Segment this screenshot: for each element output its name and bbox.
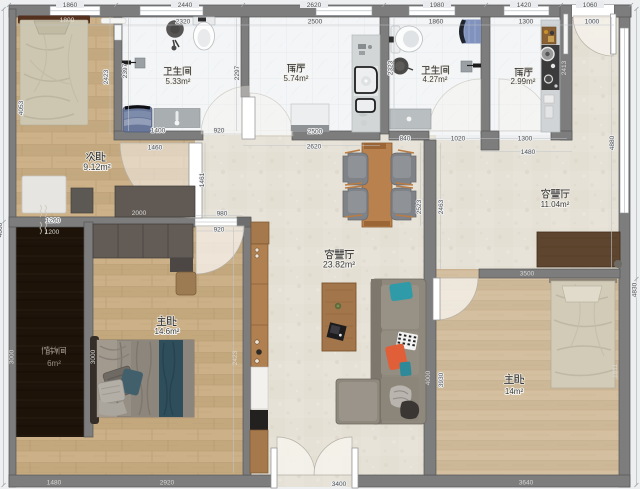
- svg-text:2413: 2413: [561, 60, 568, 75]
- svg-text:4.27m²: 4.27m²: [423, 75, 448, 84]
- svg-text:2397: 2397: [122, 63, 129, 78]
- svg-text:1300: 1300: [518, 136, 533, 143]
- svg-text:2423: 2423: [232, 350, 239, 365]
- svg-text:2423: 2423: [103, 69, 110, 84]
- svg-text:2523: 2523: [416, 199, 423, 214]
- svg-text:3400: 3400: [332, 481, 347, 488]
- svg-text:1020: 1020: [451, 136, 466, 143]
- svg-text:2320: 2320: [176, 19, 191, 26]
- svg-text:1300: 1300: [519, 19, 534, 26]
- svg-text:14m²: 14m²: [505, 387, 524, 396]
- svg-text:2297: 2297: [234, 65, 241, 80]
- svg-text:1461: 1461: [199, 172, 206, 187]
- svg-text:840: 840: [400, 136, 411, 143]
- svg-text:3640: 3640: [519, 480, 534, 487]
- svg-text:1420: 1420: [517, 2, 532, 9]
- svg-text:3000: 3000: [90, 349, 97, 364]
- svg-text:2.99m²: 2.99m²: [511, 77, 536, 86]
- svg-text:2500: 2500: [308, 129, 323, 136]
- svg-text:6m²: 6m²: [47, 359, 61, 368]
- svg-text:14.6m²: 14.6m²: [155, 327, 180, 336]
- svg-text:2323: 2323: [388, 60, 395, 75]
- svg-text:920: 920: [214, 128, 225, 135]
- svg-text:4880: 4880: [609, 135, 616, 150]
- svg-text:2620: 2620: [307, 144, 322, 151]
- svg-text:2500: 2500: [308, 19, 323, 26]
- svg-text:1000: 1000: [585, 19, 600, 26]
- svg-text:1200: 1200: [45, 229, 60, 236]
- svg-text:980: 980: [217, 211, 228, 218]
- svg-text:2920: 2920: [160, 480, 175, 487]
- svg-text:1860: 1860: [429, 19, 444, 26]
- svg-text:23.82m²: 23.82m²: [323, 260, 355, 270]
- svg-text:1480: 1480: [521, 149, 536, 156]
- svg-text:1460: 1460: [148, 145, 163, 152]
- svg-text:1860: 1860: [63, 2, 78, 9]
- svg-text:4000: 4000: [425, 370, 432, 385]
- svg-text:2463: 2463: [438, 199, 445, 214]
- svg-text:4053: 4053: [18, 100, 25, 115]
- svg-text:1400: 1400: [151, 128, 166, 135]
- svg-text:1800: 1800: [60, 17, 75, 24]
- svg-text:2440: 2440: [178, 2, 193, 9]
- svg-text:1060: 1060: [583, 2, 598, 9]
- svg-text:3930: 3930: [438, 372, 445, 387]
- svg-text:2000: 2000: [132, 210, 147, 217]
- svg-text:2620: 2620: [307, 2, 322, 9]
- svg-text:11.04m²: 11.04m²: [541, 200, 570, 209]
- svg-text:1811: 1811: [612, 364, 619, 378]
- svg-text:5.74m²: 5.74m²: [284, 74, 309, 83]
- svg-text:4830: 4830: [632, 282, 639, 297]
- svg-text:1980: 1980: [430, 2, 445, 9]
- svg-text:3500: 3500: [520, 271, 535, 278]
- svg-text:9.12m²: 9.12m²: [83, 162, 110, 172]
- svg-text:1260: 1260: [46, 218, 61, 225]
- svg-text:3000: 3000: [9, 349, 16, 364]
- svg-text:4060: 4060: [0, 222, 4, 237]
- svg-text:1480: 1480: [47, 480, 62, 487]
- svg-text:920: 920: [214, 227, 225, 234]
- svg-text:5.33m²: 5.33m²: [166, 77, 191, 86]
